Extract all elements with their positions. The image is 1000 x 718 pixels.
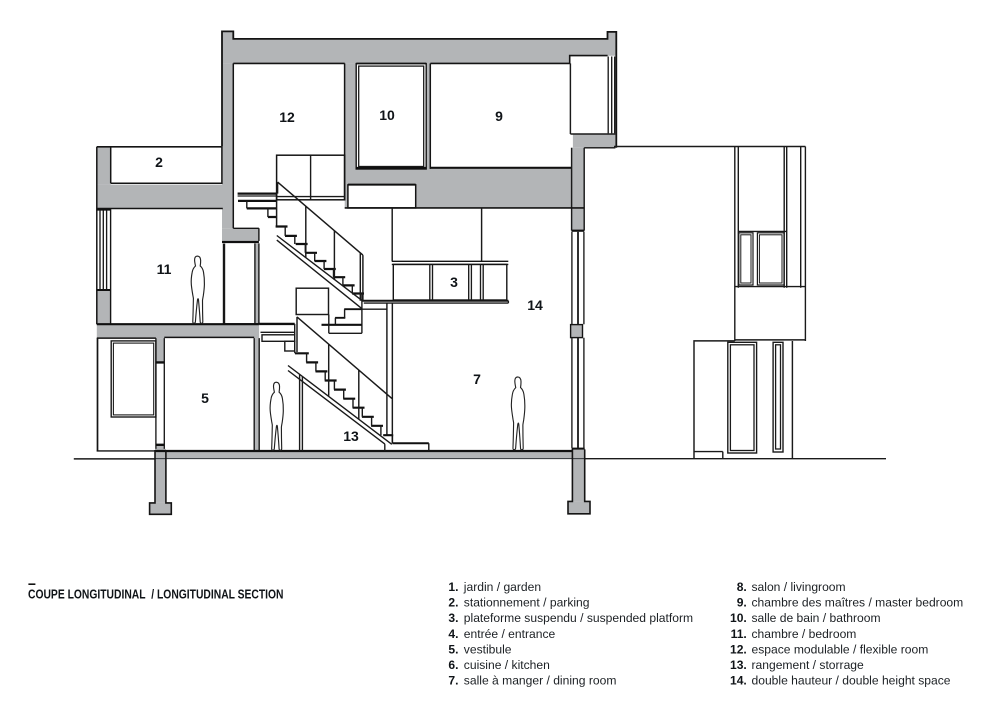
svg-text:chambre des maîtres / master b: chambre des maîtres / master bedroom (752, 596, 964, 610)
svg-text:10.: 10. (730, 611, 747, 625)
svg-text:cuisine / kitchen: cuisine / kitchen (464, 658, 550, 672)
svg-text:7: 7 (473, 371, 481, 387)
svg-text:chambre / bedroom: chambre / bedroom (752, 627, 857, 641)
svg-text:entrée / entrance: entrée / entrance (464, 627, 556, 641)
svg-text:2: 2 (155, 154, 163, 170)
svg-text:3.: 3. (448, 611, 458, 625)
svg-text:rangement / storrage: rangement / storrage (752, 658, 865, 672)
svg-text:COUPE LONGITUDINAL / LONGITUD: COUPE LONGITUDINAL / LONGITUDINAL SECTIO… (28, 586, 284, 601)
svg-text:2.: 2. (448, 596, 458, 610)
svg-text:4.: 4. (448, 627, 458, 641)
svg-text:7.: 7. (448, 674, 458, 688)
svg-text:salle à manger / dining room: salle à manger / dining room (464, 674, 617, 688)
svg-text:8.: 8. (737, 580, 747, 594)
svg-text:double hauteur / double height: double hauteur / double height space (752, 674, 951, 688)
svg-text:12: 12 (279, 109, 295, 125)
svg-text:5.: 5. (448, 642, 458, 656)
svg-text:3: 3 (450, 274, 458, 290)
svg-text:9.: 9. (737, 596, 747, 610)
svg-text:plateforme suspendu / suspende: plateforme suspendu / suspended platform (464, 611, 693, 625)
svg-text:13: 13 (343, 428, 359, 444)
svg-text:stationnement / parking: stationnement / parking (464, 596, 590, 610)
svg-text:11: 11 (157, 261, 172, 277)
svg-text:salle de bain / bathroom: salle de bain / bathroom (752, 611, 881, 625)
svg-text:1.: 1. (448, 580, 458, 594)
svg-text:espace modulable / flexible ro: espace modulable / flexible room (752, 642, 929, 656)
svg-text:jardin / garden: jardin / garden (463, 580, 541, 594)
svg-text:12.: 12. (730, 642, 747, 656)
svg-text:11.: 11. (731, 627, 747, 641)
svg-text:9: 9 (495, 108, 503, 124)
svg-text:6.: 6. (448, 658, 458, 672)
svg-text:10: 10 (379, 107, 395, 123)
svg-text:14: 14 (527, 297, 543, 313)
svg-text:5: 5 (201, 390, 209, 406)
svg-text:salon / livingroom: salon / livingroom (752, 580, 846, 594)
svg-text:13.: 13. (730, 658, 747, 672)
svg-text:vestibule: vestibule (464, 642, 512, 656)
svg-text:14.: 14. (730, 674, 747, 688)
